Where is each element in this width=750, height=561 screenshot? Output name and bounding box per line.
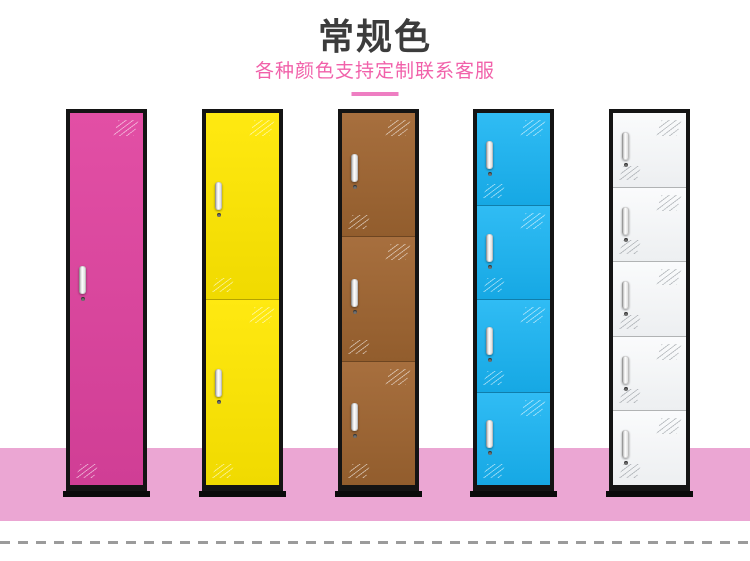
door-handle-icon xyxy=(486,420,493,448)
shine-mark-top-right xyxy=(249,307,274,323)
keyhole-icon xyxy=(81,297,85,301)
bottom-dashed-divider xyxy=(0,541,750,544)
page-subtitle: 各种颜色支持定制联系客服 xyxy=(0,56,750,83)
locker-doors xyxy=(342,113,415,485)
shine-mark-top-right xyxy=(521,307,546,323)
locker-door xyxy=(70,113,143,485)
door-handle-icon xyxy=(351,279,358,307)
keyhole-icon xyxy=(217,400,221,404)
locker-doors xyxy=(70,113,143,485)
title-underline xyxy=(352,92,399,96)
shine-mark-top-right xyxy=(521,120,546,136)
shine-mark-bottom-left xyxy=(347,340,370,354)
door-handle-icon xyxy=(486,141,493,169)
shine-mark-top-right xyxy=(521,213,546,229)
shine-mark-top-right xyxy=(113,120,138,136)
keyhole-icon xyxy=(624,387,628,391)
shine-mark-top-right xyxy=(656,269,681,285)
shine-mark-bottom-left xyxy=(347,215,370,229)
keyhole-icon xyxy=(353,310,357,314)
locker-door xyxy=(613,410,686,485)
locker-doors xyxy=(613,113,686,485)
locker-row xyxy=(66,109,690,497)
shine-mark-bottom-left xyxy=(619,464,642,478)
door-handle-icon xyxy=(622,356,629,384)
shine-mark-bottom-left xyxy=(483,464,506,478)
door-handle-icon xyxy=(486,327,493,355)
locker-door xyxy=(477,113,550,205)
shine-mark-bottom-left xyxy=(619,166,642,180)
shine-mark-top-right xyxy=(521,400,546,416)
locker-door xyxy=(206,113,279,299)
door-handle-icon xyxy=(622,207,629,235)
door-handle-icon xyxy=(351,154,358,182)
shine-mark-bottom-left xyxy=(483,278,506,292)
locker-doors xyxy=(477,113,550,485)
locker-brown-3-door xyxy=(338,109,419,497)
page-title: 常规色 xyxy=(0,8,750,60)
locker-blue-4-door xyxy=(473,109,554,497)
door-handle-icon xyxy=(622,281,629,309)
shine-mark-top-right xyxy=(385,120,410,136)
page: 常规色 各种颜色支持定制联系客服 xyxy=(0,0,750,561)
shine-mark-bottom-left xyxy=(619,240,642,254)
locker-yellow-2-door xyxy=(202,109,283,497)
locker-door xyxy=(613,113,686,187)
door-handle-icon xyxy=(486,234,493,262)
keyhole-icon xyxy=(624,238,628,242)
locker-white-5-door xyxy=(609,109,690,497)
door-handle-icon xyxy=(215,369,222,397)
shine-mark-bottom-left xyxy=(76,464,99,478)
locker-door xyxy=(342,236,415,360)
door-handle-icon xyxy=(351,403,358,431)
door-handle-icon xyxy=(215,182,222,210)
locker-door xyxy=(342,113,415,236)
keyhole-icon xyxy=(353,185,357,189)
shine-mark-top-right xyxy=(656,344,681,360)
locker-door xyxy=(206,299,279,486)
locker-door xyxy=(477,392,550,485)
shine-mark-bottom-left xyxy=(483,184,506,198)
locker-pink-1-door xyxy=(66,109,147,497)
locker-door xyxy=(477,205,550,298)
keyhole-icon xyxy=(488,265,492,269)
shine-mark-top-right xyxy=(385,244,410,260)
locker-door xyxy=(342,361,415,485)
shine-mark-top-right xyxy=(656,120,681,136)
keyhole-icon xyxy=(353,434,357,438)
door-handle-icon xyxy=(622,430,629,458)
shine-mark-bottom-left xyxy=(211,464,234,478)
door-handle-icon xyxy=(622,132,629,160)
locker-door xyxy=(477,299,550,392)
shine-mark-bottom-left xyxy=(347,464,370,478)
locker-door xyxy=(613,336,686,411)
locker-doors xyxy=(206,113,279,485)
shine-mark-top-right xyxy=(385,369,410,385)
keyhole-icon xyxy=(217,213,221,217)
shine-mark-top-right xyxy=(656,195,681,211)
shine-mark-top-right xyxy=(249,120,274,136)
keyhole-icon xyxy=(488,451,492,455)
shine-mark-bottom-left xyxy=(619,389,642,403)
shine-mark-bottom-left xyxy=(211,278,234,292)
shine-mark-bottom-left xyxy=(619,315,642,329)
door-handle-icon xyxy=(79,266,86,294)
locker-door xyxy=(613,187,686,262)
keyhole-icon xyxy=(488,172,492,176)
shine-mark-bottom-left xyxy=(483,371,506,385)
locker-door xyxy=(613,261,686,336)
shine-mark-top-right xyxy=(656,418,681,434)
keyhole-icon xyxy=(488,358,492,362)
